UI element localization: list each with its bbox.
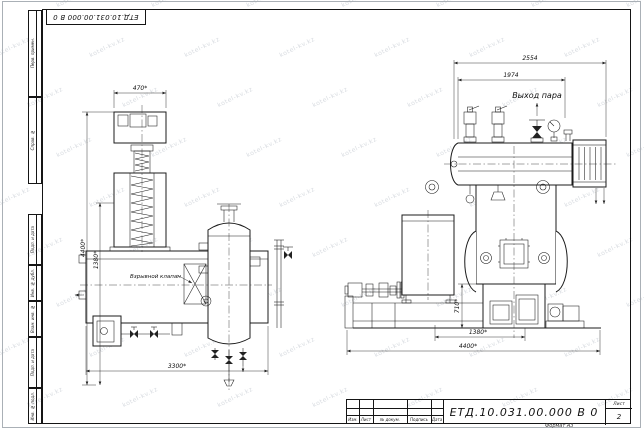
pressure-gauge xyxy=(548,120,572,141)
steam-outlet-valve xyxy=(529,120,545,142)
skid-frame xyxy=(345,296,601,328)
margin-cell-sprav-no: Справ. № xyxy=(28,97,42,184)
dim-470: 470* xyxy=(133,85,147,92)
margin-cell-perv-primen: Перв. примен. xyxy=(28,10,42,97)
dim-1974: 1974 xyxy=(503,72,518,79)
margin-label: Подп. и дата xyxy=(30,349,35,376)
front-view: Выход пара 2554 1974 710* 1380* 4400* xyxy=(345,55,616,355)
side-view: Взрывной клапан xyxy=(75,85,293,392)
boiler-front-wall xyxy=(465,185,568,292)
dim-1380-front: 1380* xyxy=(469,329,487,336)
economizer xyxy=(573,140,606,204)
margin-label: Инв. № дубл. xyxy=(30,269,35,297)
drawing-sheet: { "frame": { "doc_number": "ЕТД.10.031.0… xyxy=(0,0,644,430)
margin-label: Перв. примен. xyxy=(30,38,35,68)
feeder-drive xyxy=(345,282,404,298)
dim-4400-front: 4400* xyxy=(459,343,477,350)
margin-label: Инв. № подл. xyxy=(30,392,35,420)
doc-number: ЕТД.10.031.00.000 В 0 xyxy=(443,400,605,425)
dim-4400-side: 4400* xyxy=(80,239,87,257)
margin-label: Справ. № xyxy=(30,130,35,150)
margin-cell-inv-podl: Инв. № подл. xyxy=(28,388,42,424)
sheet-word: Лист xyxy=(605,400,632,409)
doc-number-rotated-text: ЕТД.10.031.00.000 В 0 xyxy=(53,13,139,21)
dim-710: 710* xyxy=(454,299,461,313)
col-data: Дата xyxy=(431,417,443,422)
blower xyxy=(548,304,579,321)
margin-cell-podp-data-2: Подп. и дата xyxy=(28,337,42,388)
title-block: Изм. Лист № докум. Подпись Дата ЕТД.10.0… xyxy=(346,399,631,424)
dim-2554: 2554 xyxy=(522,55,537,62)
col-izm: Изм. xyxy=(347,417,359,422)
margin-cell-inv-dubl: Инв. № дубл. xyxy=(28,265,42,301)
format-note: Формат А3 xyxy=(545,423,615,429)
feeder-motor xyxy=(130,114,146,127)
boiler-assembly-drawing: Взрывной клапан xyxy=(0,0,644,430)
dim-3300: 3300* xyxy=(168,363,186,370)
col-podpis: Подпись xyxy=(407,417,431,422)
fuel-hopper xyxy=(402,215,455,303)
margin-label: Взам. инв. № xyxy=(30,305,35,333)
margin-cell-vzam-inv: Взам. инв. № xyxy=(28,301,42,337)
doc-number-stamp: ЕТД.10.031.00.000 В 0 xyxy=(46,9,146,25)
explosion-valve xyxy=(184,264,206,304)
dim-1380-side: 1380* xyxy=(93,251,100,269)
steam-outlet-label: Выход пара xyxy=(512,91,562,100)
explosion-valve-label: Взрывной клапан xyxy=(130,274,181,280)
col-dokum: № докум. xyxy=(373,417,407,422)
margin-label: Подп. и дата xyxy=(30,226,35,253)
fuel-feeder-tower xyxy=(110,112,170,251)
col-list: Лист xyxy=(359,417,373,422)
level-column xyxy=(274,240,293,328)
margin-cell-podp-data-1: Подп. и дата xyxy=(28,214,42,265)
